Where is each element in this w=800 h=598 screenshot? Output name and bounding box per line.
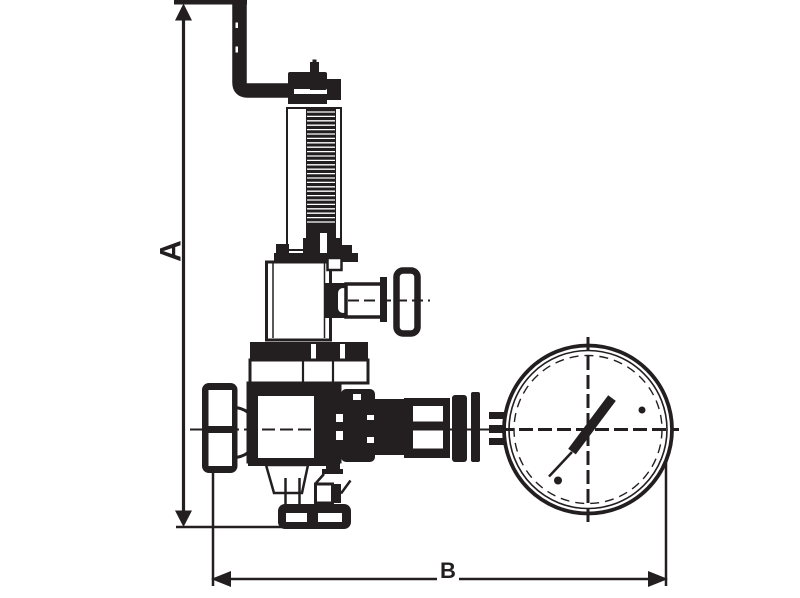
svg-text:A: A — [154, 240, 187, 262]
svg-text:B: B — [440, 558, 456, 583]
